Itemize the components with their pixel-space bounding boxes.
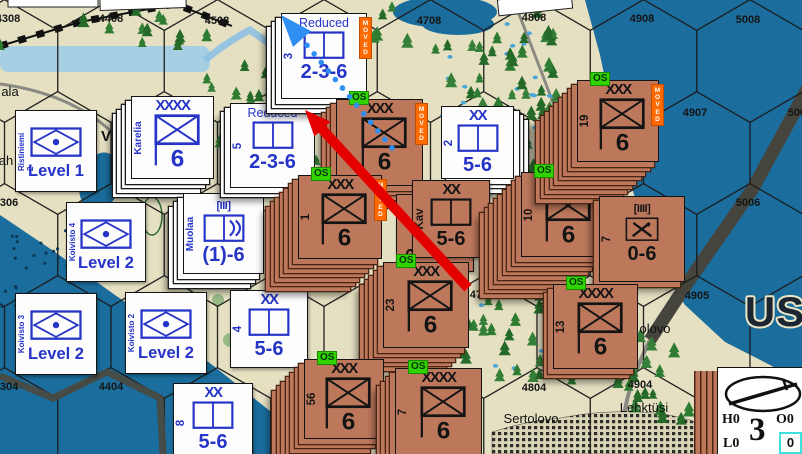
infantry-unit-symbol: 6 [589, 97, 647, 153]
unit-id: Kav [414, 208, 426, 229]
wargame-map-view: 4308440845084708480849085008490750074306… [0, 0, 802, 454]
aircraft-icon [721, 373, 802, 415]
unit-strength: 0-6 [628, 244, 657, 265]
counter-state-label: Reduced [247, 107, 297, 120]
unit-id: 3 [283, 53, 295, 59]
infantry-unit-symbol: 6 [397, 279, 455, 335]
unit-id: 19 [579, 115, 591, 128]
counter-state-label: [IIII] [634, 203, 651, 216]
unit-id: 13 [555, 320, 567, 333]
infantry-unit-symbol: 6 [315, 376, 373, 432]
moved-marker: MOVED [415, 103, 428, 145]
moved-marker: MOVED [359, 17, 372, 59]
unit-strength: 2-3-6 [301, 62, 348, 83]
unit-id: 2 [443, 139, 455, 145]
counter-reduced-3[interactable]: Reduced 2-3-63MOVED [281, 13, 367, 99]
fort-level: Level 1 [28, 161, 84, 182]
os-marker: OS [317, 351, 337, 365]
infantry-unit-symbol: 6 [567, 301, 625, 357]
brigade-unit-symbol [186, 400, 240, 432]
unit-id: 5 [232, 142, 244, 148]
unit-id: 1 [300, 214, 312, 220]
counter-sov-army-7[interactable]: XXXX 67OS [395, 368, 482, 454]
counter-div-4[interactable]: XX 5-64 [230, 290, 308, 368]
fortification-symbol [137, 307, 195, 343]
infantry-unit-symbol: 6 [311, 192, 369, 248]
moved-marker: MOVED [651, 84, 664, 126]
unit-id: Karelia [133, 121, 144, 154]
unit-echelon: XX [469, 109, 486, 123]
counter-sov-corps-10[interactable]: XXX 610OS [521, 172, 606, 257]
air-ready-box[interactable]: 0 [779, 432, 802, 454]
fortification-symbol [27, 125, 85, 161]
unit-strength: 5-6 [437, 229, 466, 250]
fort-level: Level 2 [78, 253, 134, 274]
fort-level: Level 2 [28, 344, 84, 365]
counter-koivisto3-fort[interactable]: Level 2Koivisto 3 [15, 293, 97, 375]
unit-echelon: XXX [551, 175, 577, 189]
brigade-unit-symbol [297, 30, 351, 62]
os-marker: OS [408, 360, 428, 374]
svg-text:6: 6 [338, 224, 352, 248]
counter-state-label: [III] [217, 200, 231, 213]
unit-echelon: XX [260, 293, 277, 307]
counter-air-unit[interactable]: H0 O0 L0 3 0 [717, 367, 802, 454]
counter-state-label: Reduced [299, 17, 349, 30]
unit-id: Koivisto 4 [68, 223, 77, 261]
svg-text:6: 6 [593, 333, 607, 357]
os-marker: OS [349, 91, 369, 105]
infantry-unit-symbol: 6 [535, 189, 593, 245]
os-marker: OS [396, 254, 416, 268]
fort-level: Level 2 [138, 343, 194, 364]
unit-strength: 5-6 [255, 339, 284, 360]
brigade-unit-symbol [424, 197, 478, 229]
counter-sov-kav[interactable]: XX 5-6Kav [412, 180, 490, 258]
counter-sov-corps-56[interactable]: XXX 656OS [304, 359, 384, 439]
svg-text:6: 6 [424, 311, 438, 335]
unit-id: 8 [175, 420, 187, 426]
air-strength: 3 [749, 412, 766, 449]
unit-id: 7 [397, 408, 409, 414]
os-marker: OS [311, 167, 331, 181]
counter-div-2[interactable]: XX 5-62 [441, 106, 514, 179]
unit-echelon: XXX [413, 265, 439, 279]
unit-id: Koivisto 2 [127, 314, 136, 352]
unit-strength: 5-6 [463, 155, 492, 176]
counter-sov-eng-7[interactable]: [IIII] 0-67 [599, 196, 685, 282]
moved-marker: MOVED [374, 179, 387, 221]
air-l-value: L0 [723, 436, 739, 452]
coastal-artillery-symbol [197, 213, 251, 245]
unit-strength: 5-6 [199, 432, 228, 453]
counter-div-8[interactable]: XX 5-68 [173, 383, 253, 454]
svg-text:6: 6 [561, 221, 575, 245]
unit-id: 56 [306, 393, 318, 406]
counter-layer: Level 1Ristiniemi 2XXXX 6Karelia Level 2… [0, 0, 802, 454]
counter-ristiniemi-fort[interactable]: Level 1Ristiniemi 2 [15, 110, 97, 192]
unit-id: 7 [601, 236, 613, 242]
counter-koivisto2-fort[interactable]: Level 2Koivisto 2 [125, 292, 207, 374]
air-h-value: H0 [722, 412, 740, 428]
counter-sov-army-13[interactable]: XXXX 613OS [553, 284, 638, 369]
unit-id: Muolaa [185, 216, 196, 250]
os-marker: OS [534, 164, 554, 178]
counter-sov-corps-1[interactable]: XXX 61OSMOVED [298, 175, 382, 259]
os-marker: OS [590, 72, 610, 86]
unit-echelon: XXX [367, 102, 393, 116]
counter-karelia-army[interactable]: XXXX 6Karelia [131, 96, 214, 179]
unit-id: 23 [385, 299, 397, 312]
svg-text:6: 6 [436, 417, 450, 441]
svg-text:6: 6 [342, 408, 356, 432]
unit-echelon: XX [442, 183, 459, 197]
counter-sov-corps-23[interactable]: XXX 623OS [383, 262, 469, 348]
infantry-unit-symbol: 6 [144, 113, 202, 169]
fortification-symbol [27, 308, 85, 344]
unit-id: 10 [523, 208, 535, 221]
unit-id: Ristiniemi 2 [17, 131, 35, 171]
brigade-unit-symbol [451, 123, 505, 155]
counter-koivisto4-fort[interactable]: Level 2Koivisto 4 [66, 202, 146, 282]
engineer-symbol [617, 216, 667, 244]
svg-text:6: 6 [170, 145, 184, 169]
unit-echelon: XXXX [155, 99, 189, 113]
svg-text:6: 6 [377, 148, 391, 172]
unit-strength: (1)-6 [202, 245, 244, 266]
unit-id: 4 [232, 326, 244, 332]
unit-id: Koivisto 3 [17, 315, 26, 353]
fortification-symbol [77, 217, 135, 253]
brigade-unit-symbol [246, 120, 300, 152]
infantry-unit-symbol: 6 [410, 385, 468, 441]
counter-sov-corps-19[interactable]: XXX 619OSMOVED [577, 80, 659, 162]
svg-text:6: 6 [616, 129, 630, 153]
counter-sov-corps[interactable]: XXX 6OSMOVED [336, 99, 423, 186]
infantry-unit-symbol: 6 [351, 116, 409, 172]
unit-echelon: XX [204, 386, 221, 400]
air-o-value: O0 [776, 412, 794, 428]
brigade-unit-symbol [242, 307, 296, 339]
os-marker: OS [566, 276, 586, 290]
counter-muolaa-coastal[interactable]: [III] (1)-6Muolaa [183, 193, 264, 274]
unit-strength: 2-3-6 [249, 152, 296, 173]
